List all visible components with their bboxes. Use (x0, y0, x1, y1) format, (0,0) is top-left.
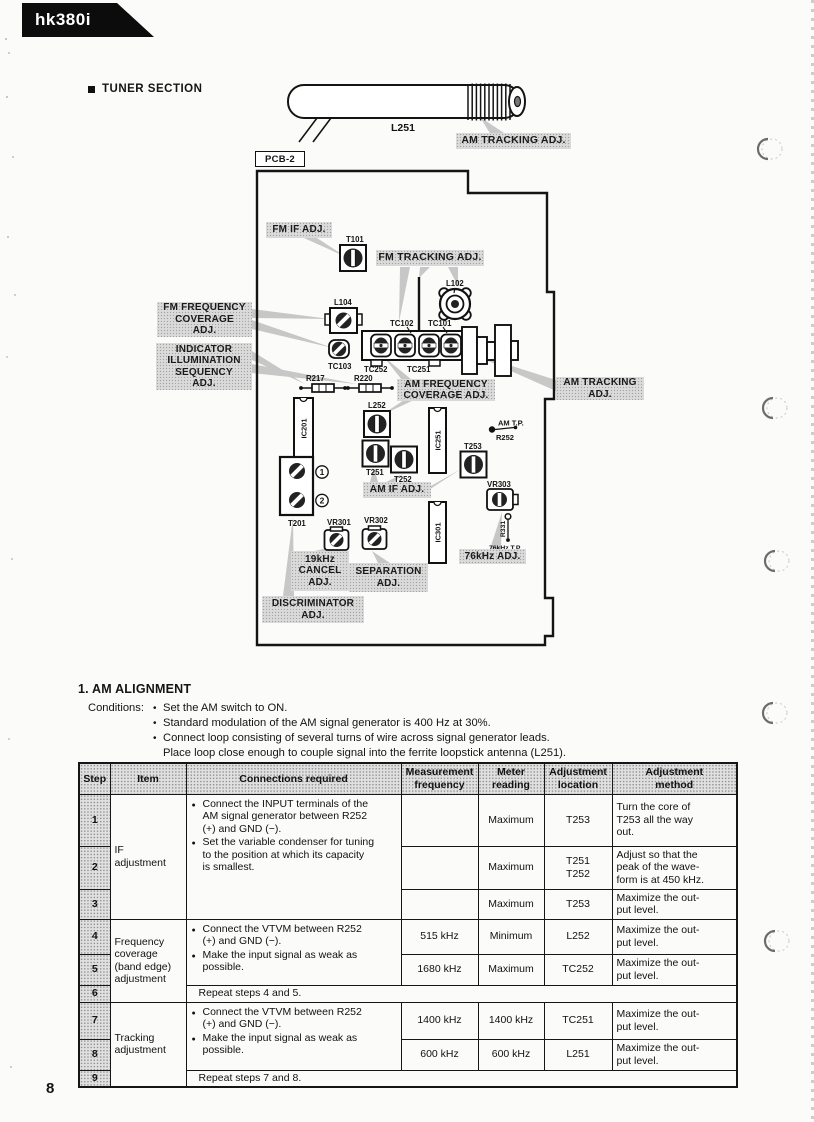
step-cell: 2 (79, 846, 110, 889)
bullet-icon: • (153, 701, 163, 716)
bullet-icon: ● (192, 1032, 203, 1057)
label-tc252: TC252 (364, 365, 388, 374)
model-name: hk380i (22, 3, 91, 36)
bullet-icon: ● (192, 923, 203, 948)
col-header-location: Adjustment location (544, 763, 612, 794)
location-cell: L251 (544, 1039, 612, 1070)
label-ic301: IC301 (434, 522, 443, 542)
component-ic301: IC301 (429, 502, 446, 563)
repeat-cell: Repeat steps 7 and 8. (186, 1070, 737, 1087)
adj-label-am-frequency-coverage: AM FREQUENCY COVERAGE ADJ. (397, 379, 495, 401)
method-cell: Maximize the out- put level. (612, 889, 737, 919)
label-tc251: TC251 (407, 365, 431, 374)
label-t251: T251 (366, 468, 384, 477)
label-vr302: VR302 (364, 516, 389, 525)
label-am-tp: AM T.P. (498, 419, 524, 428)
connection-bullet: ●Make the input signal as weak as possib… (192, 1032, 397, 1057)
frequency-cell: 1400 kHz (401, 1002, 478, 1039)
meter-cell: Maximum (478, 954, 544, 985)
component-t101: T101 (340, 235, 366, 271)
bullet-icon: • (153, 731, 163, 761)
repeat-cell: Repeat steps 4 and 5. (186, 985, 737, 1002)
scan-speckles (5, 38, 7, 40)
step-cell: 8 (79, 1039, 110, 1070)
component-r220: R220 (346, 374, 394, 392)
component-t251: T251 (363, 441, 389, 478)
frequency-cell (401, 794, 478, 846)
step-cell: 6 (79, 985, 110, 1002)
component-vr301: VR301 (325, 518, 352, 550)
am-alignment-table: Step Item Connections required Measureme… (78, 762, 738, 1088)
adj-label-separation: SEPARATION ADJ. (349, 563, 428, 592)
adj-label-fm-frequency-coverage: FM FREQUENCY COVERAGE ADJ. (157, 302, 252, 337)
step-cell: 4 (79, 919, 110, 954)
location-cell: T253 (544, 794, 612, 846)
label-ic251: IC251 (434, 430, 443, 450)
col-header-meter: Meter reading (478, 763, 544, 794)
label-tc103: TC103 (328, 362, 352, 371)
page-number: 8 (46, 1080, 54, 1097)
am-alignment-table-wrap: Step Item Connections required Measureme… (78, 762, 738, 1088)
adj-label-am-tracking-antenna: AM TRACKING ADJ. (456, 133, 571, 149)
component-t201: 1 2 T201 (280, 457, 328, 528)
step-cell: 5 (79, 954, 110, 985)
adj-label-fm-tracking: FM TRACKING ADJ. (376, 250, 484, 266)
table-row: 1 IF adjustment ●Connect the INPUT termi… (79, 794, 737, 846)
frequency-cell: 515 kHz (401, 919, 478, 954)
conditions-list: • Set the AM switch to ON. • Standard mo… (153, 701, 566, 761)
location-cell: T253 (544, 889, 612, 919)
adj-label-am-if: AM IF ADJ. (363, 482, 431, 498)
location-cell: TC252 (544, 954, 612, 985)
bullet-icon: ● (192, 836, 203, 874)
col-header-item: Item (110, 763, 186, 794)
label-vr303: VR303 (487, 480, 512, 489)
component-l104: L104 (325, 298, 362, 333)
conditions-block: Conditions: • Set the AM switch to ON. •… (88, 701, 566, 761)
connector-block (462, 325, 518, 376)
adj-label-19khz-cancel: 19kHz CANCEL ADJ. (291, 551, 349, 591)
label-r220: R220 (354, 374, 373, 383)
connection-bullet: ●Connect the VTVM between R252 (+) and G… (192, 923, 397, 948)
adj-label-indicator-illumination: INDICATOR ILLUMINATION SEQUENCY ADJ. (156, 343, 252, 390)
component-l102: L102 (439, 279, 471, 320)
label-t253: T253 (464, 442, 482, 451)
label-tc102: TC102 (390, 319, 414, 328)
square-bullet-icon (88, 86, 95, 93)
col-header-method: Adjustment method (612, 763, 737, 794)
connection-bullet: ●Set the variable condenser for tuning t… (192, 836, 397, 874)
adj-label-am-tracking-board: AM TRACKING ADJ. (556, 377, 644, 400)
bullet-icon: ● (192, 1006, 203, 1031)
component-t253: T253 (461, 442, 487, 478)
table-row: 4 Frequency coverage (band edge) adjustm… (79, 919, 737, 954)
col-header-step: Step (79, 763, 110, 794)
am-test-point: AM T.P. R252 (489, 419, 524, 443)
adj-label-discriminator: DISCRIMINATOR ADJ. (262, 596, 364, 623)
pcb-board-tag: PCB-2 (255, 151, 305, 167)
component-t252: T252 (391, 447, 417, 485)
label-l104: L104 (334, 298, 352, 307)
frequency-cell (401, 846, 478, 889)
label-vr301: VR301 (327, 518, 352, 527)
method-cell: Maximize the out- put level. (612, 919, 737, 954)
label-t101: T101 (346, 235, 364, 244)
col-header-connections: Connections required (186, 763, 401, 794)
label-ic201: IC201 (300, 418, 309, 438)
component-r331: R331 76kHz T.P. (489, 514, 521, 552)
component-ic201: IC201 (294, 398, 313, 459)
step-cell: 3 (79, 889, 110, 919)
connections-cell: ●Connect the VTVM between R252 (+) and G… (186, 919, 401, 985)
item-cell: Frequency coverage (band edge) adjustmen… (110, 919, 186, 1002)
bullet-icon: • (153, 716, 163, 731)
connection-bullet: ●Connect the VTVM between R252 (+) and G… (192, 1006, 397, 1031)
location-cell: L252 (544, 919, 612, 954)
frequency-cell: 1680 kHz (401, 954, 478, 985)
am-alignment-heading: 1. AM ALIGNMENT (78, 682, 191, 696)
label-point2: 2 (320, 496, 325, 506)
label-point1: 1 (320, 467, 325, 477)
condition-item: • Standard modulation of the AM signal g… (153, 716, 566, 731)
label-r217: R217 (306, 374, 325, 383)
step-cell: 7 (79, 1002, 110, 1039)
bullet-icon: ● (192, 798, 203, 836)
method-cell: Maximize the out- put level. (612, 1039, 737, 1070)
component-l252: L252 (364, 401, 390, 437)
table-header-row: Step Item Connections required Measureme… (79, 763, 737, 794)
connection-bullet: ●Make the input signal as weak as possib… (192, 949, 397, 974)
section-title: TUNER SECTION (102, 83, 202, 95)
meter-cell: Maximum (478, 794, 544, 846)
connections-cell: ●Connect the VTVM between R252 (+) and G… (186, 1002, 401, 1070)
meter-cell: Maximum (478, 846, 544, 889)
method-cell: Adjust so that the peak of the wave- for… (612, 846, 737, 889)
component-r217: R217 (299, 374, 347, 392)
bullet-icon: ● (192, 949, 203, 974)
step-cell: 1 (79, 794, 110, 846)
binder-hole-marks (758, 139, 789, 951)
meter-cell: 1400 kHz (478, 1002, 544, 1039)
adj-label-fm-if: FM IF ADJ. (266, 222, 332, 238)
connections-cell: ●Connect the INPUT terminals of the AM s… (186, 794, 401, 919)
meter-cell: Maximum (478, 889, 544, 919)
table-row: 7 Tracking adjustment ●Connect the VTVM … (79, 1002, 737, 1039)
label-l252: L252 (368, 401, 386, 410)
label-t201: T201 (288, 519, 306, 528)
frequency-cell: 600 kHz (401, 1039, 478, 1070)
label-tc101: TC101 (428, 319, 452, 328)
condition-item: • Set the AM switch to ON. (153, 701, 566, 716)
trimmer-bank: TC102 TC101 TC252 TC251 (362, 319, 462, 374)
method-cell: Maximize the out- put level. (612, 954, 737, 985)
component-tc103: TC103 (328, 340, 352, 371)
method-cell: Turn the core of T253 all the way out. (612, 794, 737, 846)
label-r331: R331 (500, 521, 507, 537)
adj-label-76khz: 76kHz ADJ. (459, 549, 526, 564)
location-cell: TC251 (544, 1002, 612, 1039)
component-ic251: IC251 (429, 408, 446, 473)
connection-bullet: ●Connect the INPUT terminals of the AM s… (192, 798, 397, 836)
item-cell: IF adjustment (110, 794, 186, 919)
component-vr303: VR303 (487, 480, 518, 510)
conditions-label: Conditions: (88, 701, 144, 761)
method-cell: Maximize the out- put level. (612, 1002, 737, 1039)
section-heading: TUNER SECTION (88, 83, 202, 95)
frequency-cell (401, 889, 478, 919)
location-cell: T251 T252 (544, 846, 612, 889)
condition-item: • Connect loop consisting of several tur… (153, 731, 566, 761)
step-cell: 9 (79, 1070, 110, 1087)
meter-cell: Minimum (478, 919, 544, 954)
label-l102: L102 (446, 279, 464, 288)
meter-cell: 600 kHz (478, 1039, 544, 1070)
col-header-frequency: Measurement frequency (401, 763, 478, 794)
manual-page: hk380i TUNER SECTION (0, 0, 814, 1122)
antenna-part-label: L251 (391, 122, 415, 134)
item-cell: Tracking adjustment (110, 1002, 186, 1087)
label-r252: R252 (496, 433, 514, 442)
component-vr302: VR302 (363, 516, 389, 549)
